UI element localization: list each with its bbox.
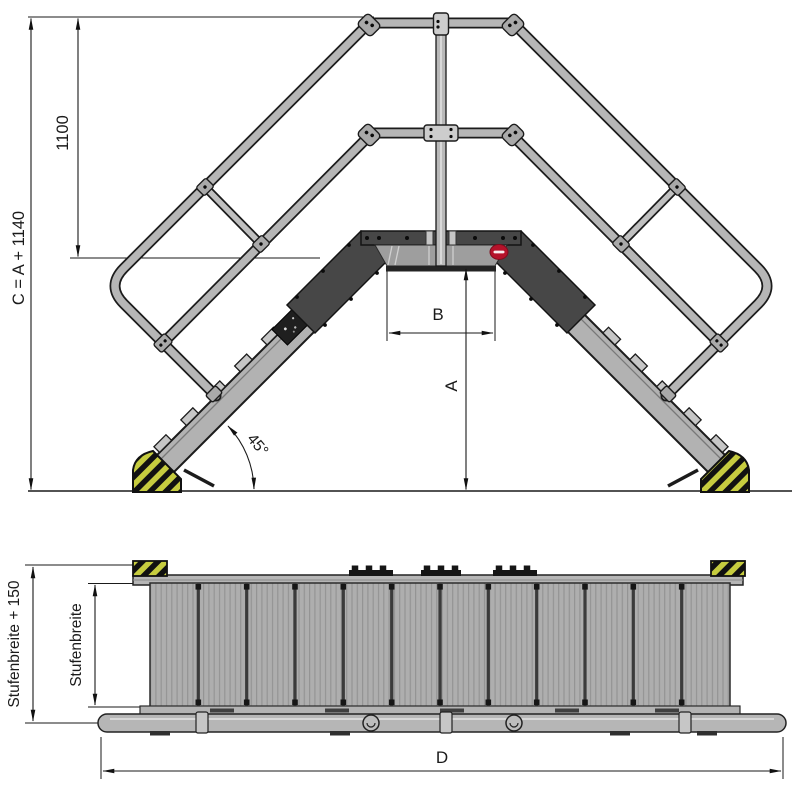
left-rail-post <box>205 187 261 244</box>
divider-bolt <box>534 700 540 706</box>
dim-label-step-width: Stufenbreite <box>68 603 85 687</box>
left-handrail-outline <box>115 23 369 396</box>
post-left-bracket <box>426 231 433 245</box>
brand-badge-wordmark <box>494 251 505 254</box>
divider-bolt <box>534 584 540 590</box>
divider-bolt <box>292 584 298 590</box>
divider-bolt <box>582 584 588 590</box>
mid-rail-cross-clamp <box>424 125 458 141</box>
brand-badge <box>490 245 508 260</box>
divider-bolt <box>389 584 395 590</box>
dim-label-total-length: D <box>436 748 448 767</box>
divider-bolt <box>631 584 637 590</box>
dim-label-total-height: C = A + 1140 <box>10 211 28 305</box>
divider-bolt <box>292 700 298 706</box>
stair-structure <box>133 258 749 492</box>
top-rail-center-clamp <box>434 13 449 35</box>
hazard-corner-right <box>711 561 745 576</box>
divider-bolt <box>437 700 443 706</box>
platform-right-side-plate <box>493 231 595 333</box>
platform-bottom-strip <box>386 266 496 272</box>
right-handrail-outline <box>513 23 767 396</box>
divider-bolt <box>631 700 637 706</box>
dim-label-platform-height: A <box>442 380 461 392</box>
divider-bolt <box>486 700 492 706</box>
dim-label-outer-width: Stufenbreite + 150 <box>6 580 23 707</box>
plan-extension-lines <box>25 565 150 723</box>
hazard-corner-left <box>133 561 167 576</box>
platform-left-side-plate <box>287 231 389 333</box>
divider-bolt <box>437 584 443 590</box>
divider-bolt <box>196 584 202 590</box>
divider-bolt <box>244 584 250 590</box>
divider-bolt <box>196 700 202 706</box>
plan-rail-fittings <box>349 566 537 577</box>
divider-bolt <box>486 584 492 590</box>
far-rail-end-left <box>184 470 214 486</box>
right-rail-post <box>621 187 677 244</box>
divider-bolt <box>341 700 347 706</box>
dim-label-guardrail-height: 1100 <box>54 115 72 150</box>
drawing-page: C = A + 1140 1100 B A 45° <box>0 0 800 795</box>
divider-bolt <box>244 700 250 706</box>
post-right-bracket <box>449 231 456 245</box>
divider-bolt <box>341 584 347 590</box>
plan-structure <box>98 561 786 736</box>
plan-view: Stufenbreite + 150 Stufenbreite D <box>6 561 786 779</box>
dim-label-platform-width: B <box>432 305 443 324</box>
far-rail-end-right <box>668 470 698 486</box>
divider-bolt <box>679 584 685 590</box>
divider-bolt <box>679 700 685 706</box>
divider-bolt <box>389 700 395 706</box>
technical-drawing-canvas: C = A + 1140 1100 B A 45° <box>0 0 800 795</box>
divider-bolt <box>582 700 588 706</box>
front-elevation-view: C = A + 1140 1100 B A 45° <box>10 13 792 492</box>
